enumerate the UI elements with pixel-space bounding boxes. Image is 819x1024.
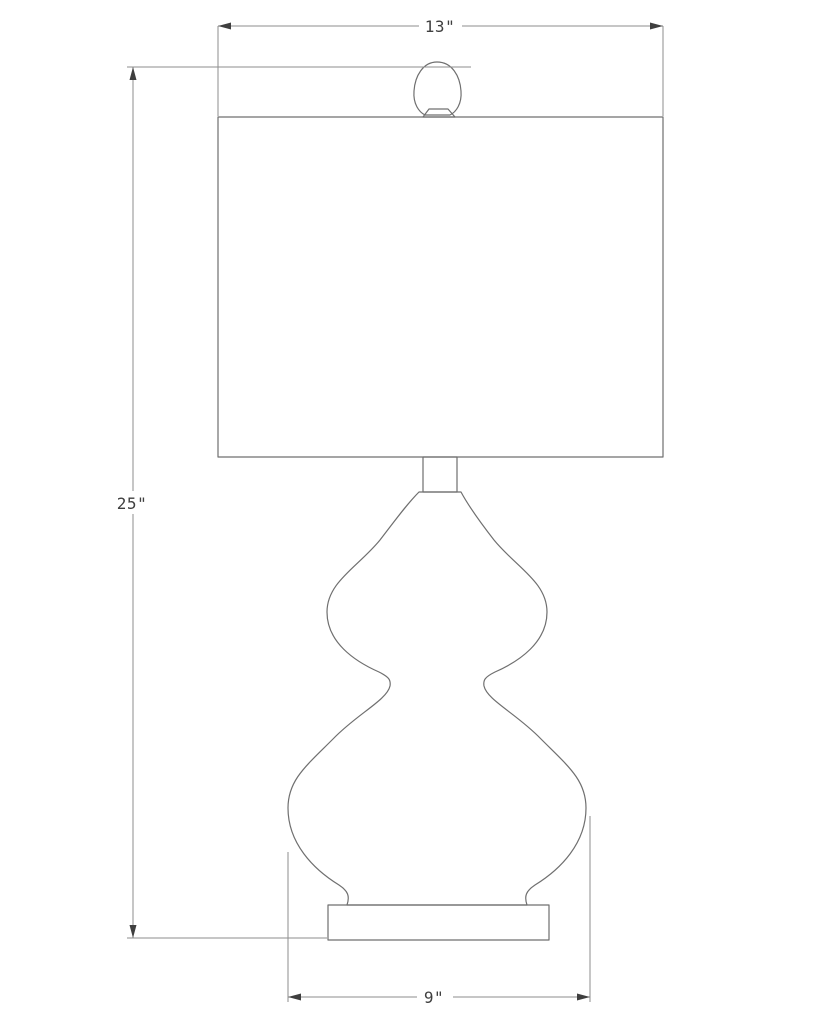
lamp-object	[218, 62, 663, 940]
arrowhead-up-icon	[130, 67, 137, 80]
finial-collar	[423, 109, 455, 117]
arrowhead-left-icon	[218, 23, 231, 30]
dimension-base-width: 9"	[288, 816, 590, 1007]
shade-width-label: 13"	[425, 17, 455, 36]
lamp-base	[328, 905, 549, 940]
arrowhead-right-icon	[577, 994, 590, 1001]
overall-height-label: 25"	[117, 494, 147, 513]
base-width-label: 9"	[424, 988, 444, 1007]
arrowhead-down-icon	[130, 925, 137, 938]
dimension-overall-height: 25"	[110, 67, 471, 938]
lamp-body	[288, 492, 586, 905]
arrowhead-right-icon	[650, 23, 663, 30]
lamp-finial	[414, 62, 461, 115]
lamp-dimension-drawing: 13" 25" 9"	[0, 0, 819, 1024]
lamp-shade	[218, 117, 663, 457]
dimension-shade-width: 13"	[218, 15, 663, 116]
lamp-neck	[423, 457, 457, 492]
arrowhead-left-icon	[288, 994, 301, 1001]
drawing-svg: 13" 25" 9"	[0, 0, 819, 1024]
